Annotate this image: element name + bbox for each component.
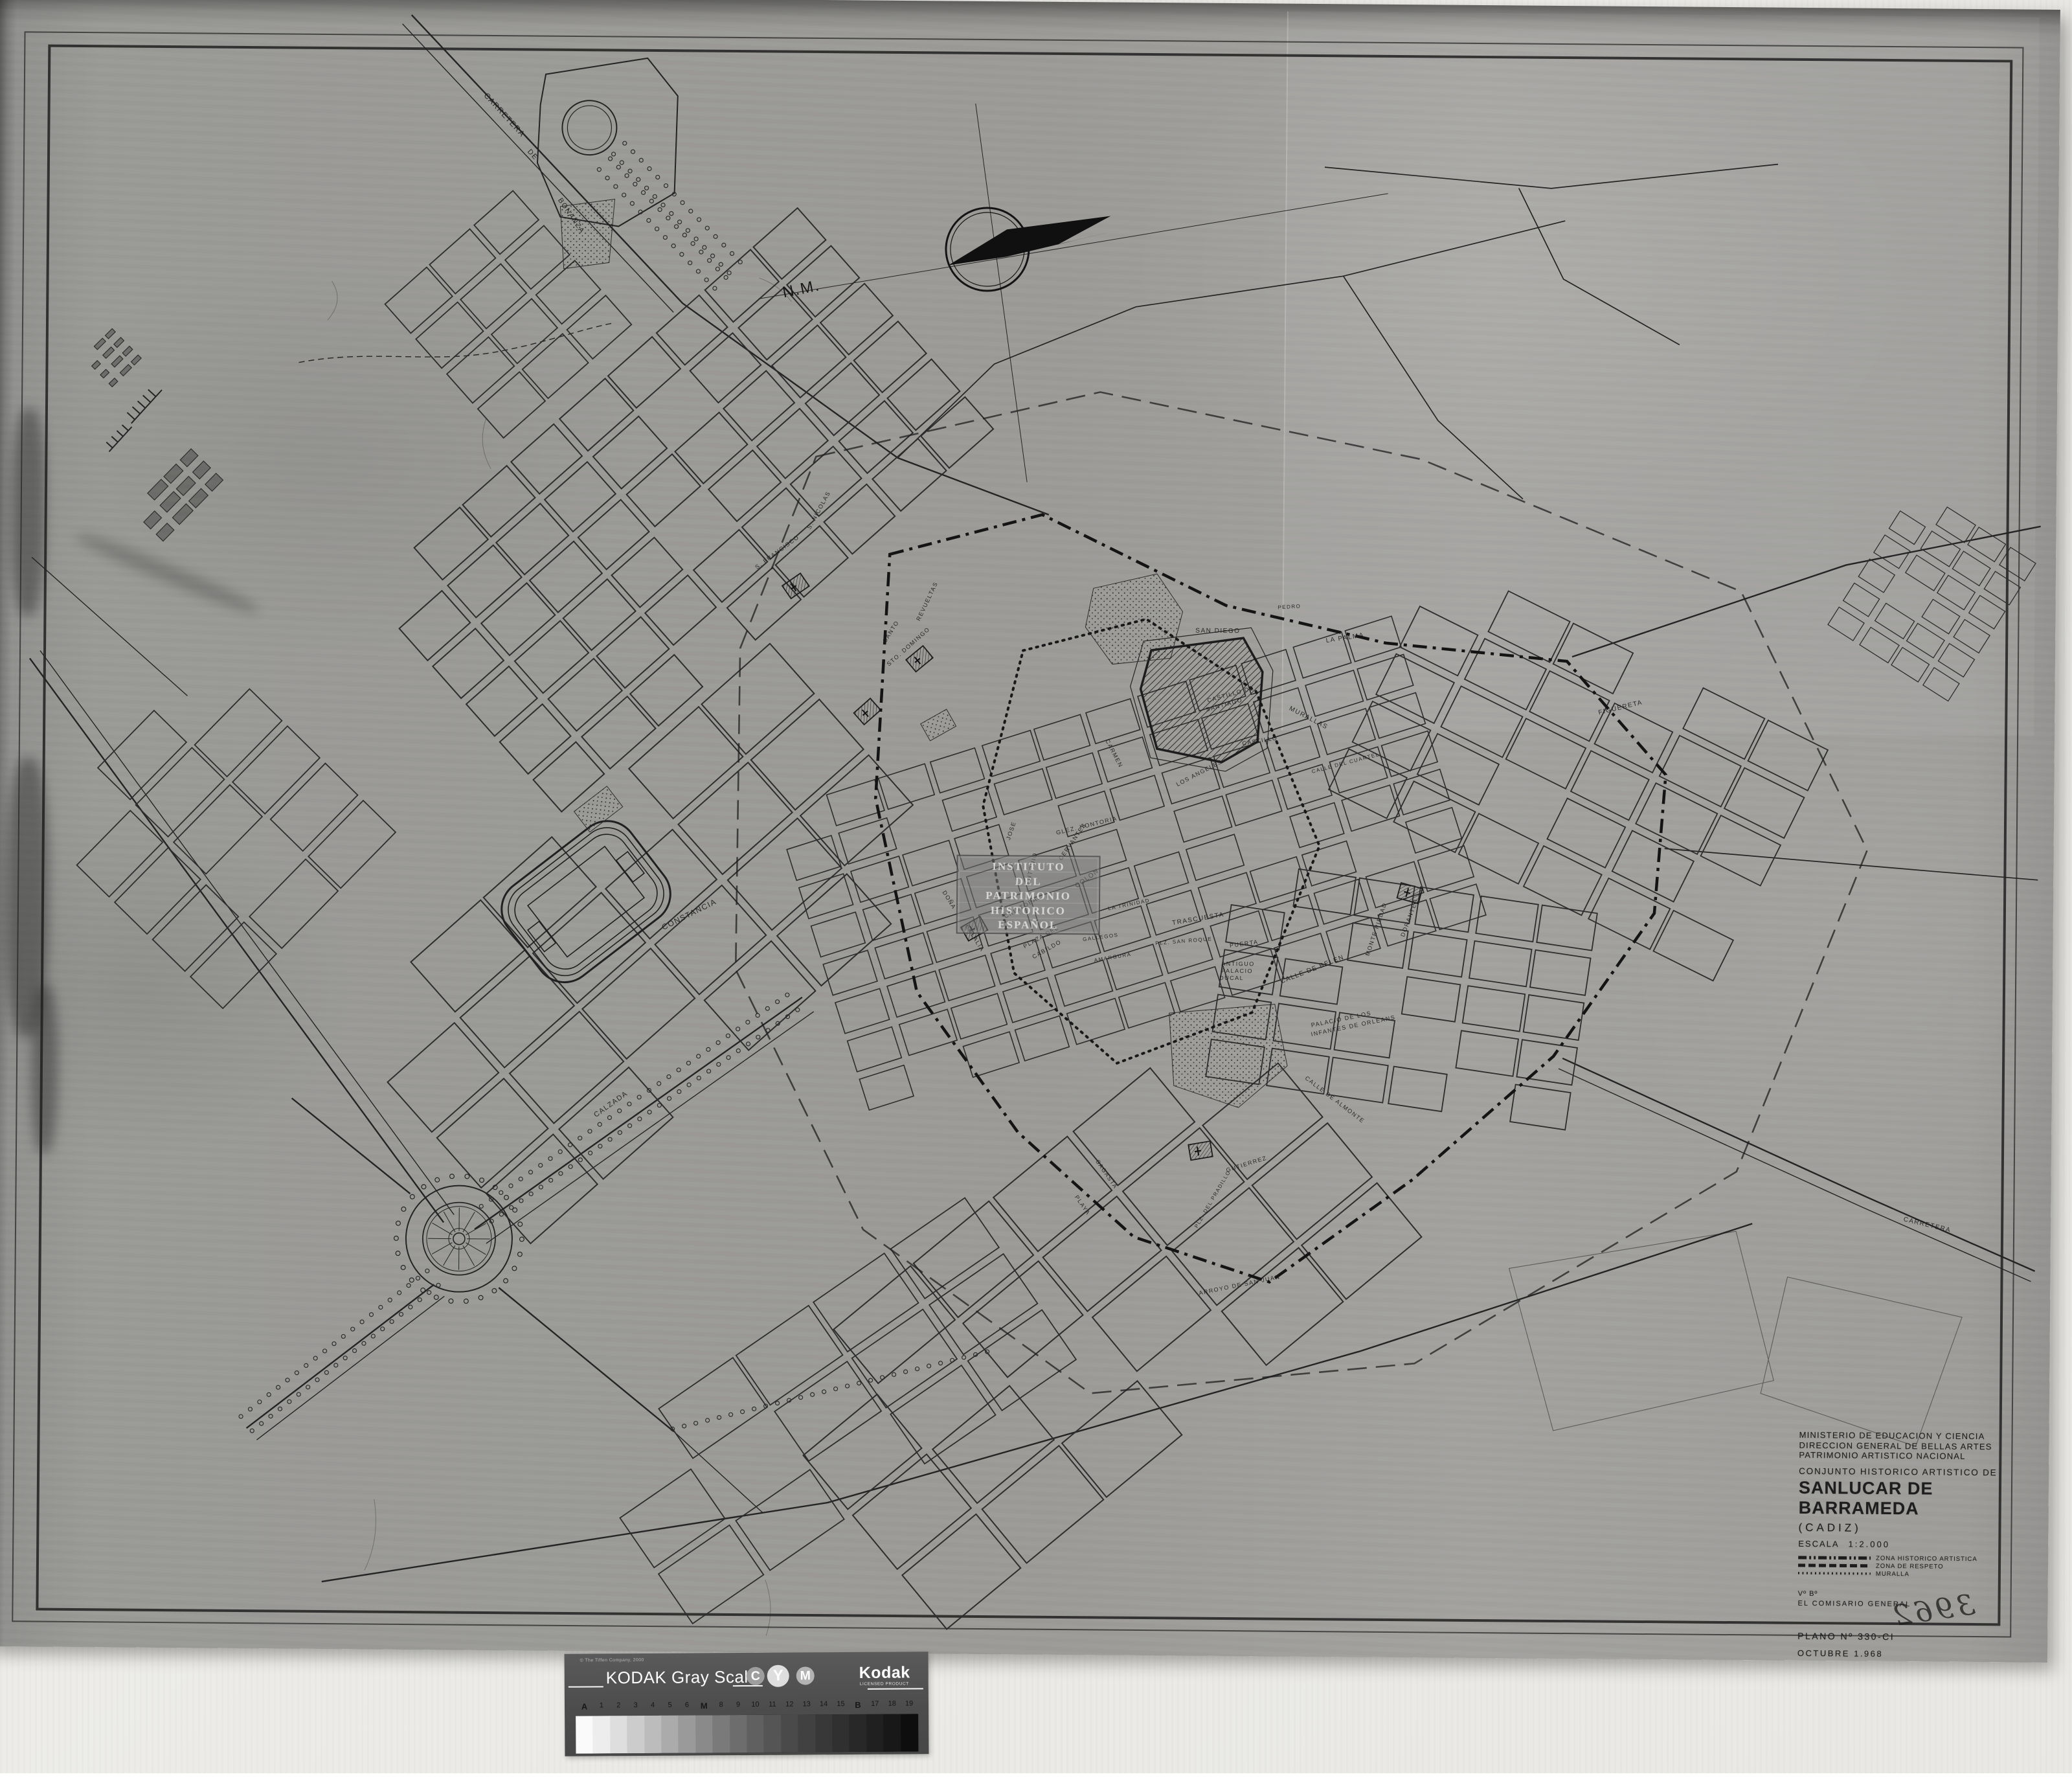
scale: ESCALA1:2.000 (1798, 1538, 2012, 1550)
gray-patch (730, 1715, 748, 1753)
block-grid (83, 328, 141, 387)
patch-label: 10 (747, 1701, 764, 1709)
patch-label: 11 (763, 1701, 781, 1709)
kodak-logo: Kodak (859, 1663, 910, 1682)
gray-patch (883, 1714, 901, 1752)
map-title: SANLUCAR DE BARRAMEDA (1799, 1477, 2012, 1519)
piers (103, 383, 162, 452)
patch-label: 1 (592, 1701, 610, 1709)
patch-label: 6 (678, 1701, 695, 1709)
map-sheet: N.M. CARRETERADEBONANZACONSTANCIACALZADA… (0, 0, 2060, 1663)
patch-label: A (576, 1701, 593, 1711)
north-arrow-icon (949, 215, 1118, 267)
card-copyright: © The Tiffen Company, 2000 (580, 1658, 644, 1663)
patch-label: 5 (661, 1701, 679, 1709)
church-icon (854, 698, 881, 725)
ministry-line: PATRIMONIO ARTISTICO NACIONAL (1799, 1450, 2012, 1462)
street-label: CARRETERA (482, 91, 527, 139)
patch-label: 15 (832, 1700, 850, 1708)
patch-label: 13 (798, 1700, 815, 1708)
legend-label: ZONA HISTORICO ARTISTICA (1876, 1554, 1977, 1562)
street-label: DUCAL (1219, 975, 1244, 981)
block-grid (366, 208, 993, 812)
street-label: ARROYO DE SAN JUAN (1199, 1273, 1281, 1296)
street-label: S. FRANCISCO (754, 534, 800, 571)
patch-label: B (849, 1700, 866, 1710)
scale-label: ESCALA (1798, 1538, 1839, 1548)
block-grid (39, 652, 396, 1008)
street-label: DOÑA (941, 889, 957, 911)
patch-labels: A123456M89101112131415B171819 (576, 1699, 918, 1713)
churches (778, 573, 1424, 1162)
gray-patch (781, 1715, 799, 1753)
street-label: CALLE DE BELEN (1279, 954, 1346, 986)
rule-line (733, 1685, 763, 1686)
church-icon (1188, 1141, 1213, 1160)
street-label: PLAYA (1074, 1194, 1092, 1217)
legend-label: ZONA DE RESPETO (1876, 1562, 1944, 1570)
patch-label: 12 (781, 1701, 798, 1709)
street-label: PLZ. SAN ROQUE (1155, 936, 1213, 946)
gray-patch (712, 1715, 730, 1753)
road-network (22, 12, 2045, 1645)
gray-patch (661, 1716, 679, 1753)
patch-label: 17 (866, 1700, 884, 1708)
street-label: CALLE DE ALMONTE (1304, 1075, 1366, 1125)
archive-stamp: INSTITUTODELPATRIMONIOHISTORICOESPAÑOL (956, 855, 1101, 935)
rule-line (868, 1688, 923, 1690)
gray-patch (627, 1716, 645, 1753)
street-label: PEDRO (1278, 603, 1301, 610)
gray-patch (832, 1714, 850, 1752)
patch-label: 18 (883, 1700, 901, 1708)
gray-patch (866, 1714, 884, 1752)
legend: ZONA HISTORICO ARTISTICAZONA DE RESPETOM… (1798, 1554, 2012, 1578)
patch-label: M (695, 1701, 713, 1710)
series-title: CONJUNTO HISTORICO ARTISTICO DE (1799, 1466, 2012, 1477)
patch-label: 2 (610, 1701, 627, 1709)
scanned-map-page: { "map": { "north_label": "N.M.", "stamp… (0, 0, 2072, 1773)
stamp-line: ESPAÑOL (958, 918, 1099, 933)
street-label: CARRETERA (1903, 1216, 1952, 1234)
street-label: CARMEN (1104, 738, 1124, 769)
plan-date: OCTUBRE 1.968 (1797, 1648, 2011, 1659)
ministry-lines: MINISTERIO DE EDUCACION Y CIENCIADIRECCI… (1799, 1430, 2012, 1462)
church-icon (906, 646, 932, 672)
rule-line (569, 1686, 603, 1687)
zona-de-respeto-line (732, 389, 1871, 1400)
street-label: ANTIGUO (1221, 960, 1255, 967)
street-label: PUERTA (1229, 938, 1259, 949)
kodak-logo-subtitle: LICENSED PRODUCT (860, 1681, 909, 1686)
street-label: REVUELTAS (915, 580, 939, 622)
gray-patch (678, 1715, 696, 1753)
patch-label: 4 (644, 1701, 662, 1709)
gray-patch (695, 1715, 714, 1753)
plan-number: PLANO Nº 330-CI (1797, 1630, 2011, 1642)
block-grid (1329, 559, 1828, 981)
gray-patch (610, 1716, 628, 1753)
block-grid (131, 449, 223, 541)
kodak-gray-scale-card: © The Tiffen Company, 2000 KODAK Gray Sc… (565, 1652, 929, 1756)
scale-value: 1:2.000 (1849, 1539, 1890, 1549)
stamp-line: INSTITUTO (958, 859, 1099, 875)
gray-patch (644, 1716, 662, 1753)
gray-patch (747, 1715, 765, 1753)
stamp-line: PATRIMONIO (958, 889, 1099, 904)
street-label: S. NICOLAS (806, 490, 832, 530)
block-grid (754, 1003, 1421, 1629)
block-grid (581, 1198, 1076, 1624)
legend-row: MURALLA (1798, 1569, 2012, 1578)
block-grid (1828, 487, 2036, 701)
legend-label: MURALLA (1876, 1570, 1909, 1577)
gray-patch (763, 1715, 782, 1753)
street-label: GUTIERREZ (1225, 1155, 1267, 1174)
roundabout (394, 1174, 524, 1304)
stamp-line: HISTORICO (958, 903, 1099, 918)
street-labels: CARRETERADEBONANZACONSTANCIACALZADATRASC… (473, 91, 1961, 1302)
ink-circle-M: M (796, 1666, 815, 1685)
protection-boundaries (732, 389, 1871, 1400)
patch-label: 9 (730, 1701, 747, 1709)
gray-patch (592, 1716, 611, 1753)
patch-label: 3 (627, 1701, 644, 1709)
street-label: PLZ. DEL PRADILLO (1193, 1169, 1232, 1229)
compass-rose: N.M. (758, 102, 1389, 485)
gray-patch (815, 1714, 833, 1752)
patch-label: 14 (815, 1700, 833, 1708)
patch-label: 19 (901, 1699, 918, 1707)
street-label: JOSE (1005, 821, 1017, 841)
patch-label: 8 (712, 1701, 730, 1709)
gray-patch (576, 1716, 594, 1753)
gray-patches (576, 1714, 918, 1753)
magnetic-north-label: N.M. (781, 277, 822, 301)
gray-patch (849, 1714, 867, 1752)
street-label: SAN DIEGO (1195, 628, 1240, 635)
ink-circle-Y: Y (767, 1665, 789, 1687)
gray-patch (798, 1714, 816, 1752)
street-label: PALACIO (1221, 968, 1253, 974)
street-label: LOS ANGELES (1175, 758, 1224, 788)
gray-patch (901, 1714, 919, 1751)
ink-circle-C: C (747, 1667, 765, 1685)
stamp-line: DEL (958, 874, 1099, 889)
province: (CADIZ) (1798, 1521, 2012, 1536)
